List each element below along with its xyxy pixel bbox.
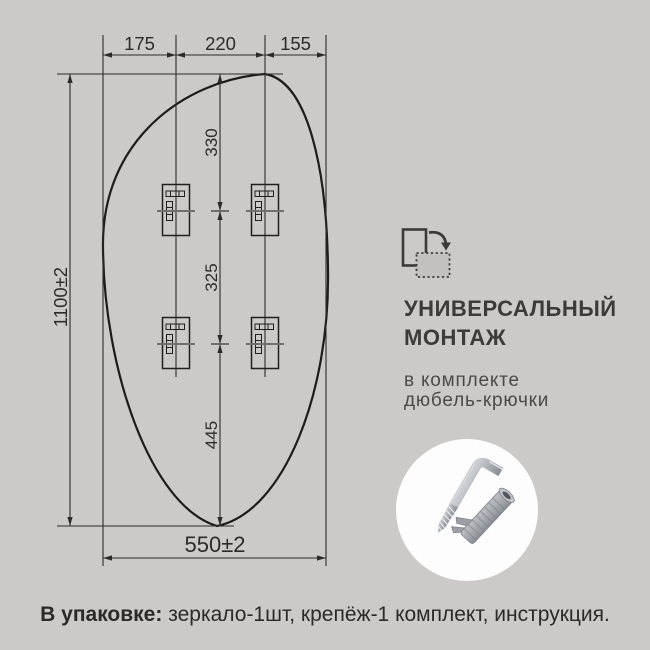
dim-label-top-220: 220 xyxy=(205,33,236,54)
dimension-lines xyxy=(70,55,326,558)
dim-label-top-155: 155 xyxy=(280,33,311,54)
dim-label-325: 325 xyxy=(202,263,221,291)
package-contents-text: зеркало-1шт, крепёж-1 комплект, инструкц… xyxy=(162,603,609,626)
package-contents: В упаковке: зеркало-1шт, крепёж-1 компле… xyxy=(0,603,650,627)
curved-arrow-icon xyxy=(429,232,446,244)
dim-label-330: 330 xyxy=(202,128,221,156)
arrowhead xyxy=(441,243,451,251)
title-line-2: МОНТАЖ xyxy=(404,323,617,352)
dim-label-width: 550±2 xyxy=(184,532,245,557)
hook-and-dowel-photo xyxy=(396,439,538,581)
dim-label-height: 1100±2 xyxy=(50,267,71,327)
included-hardware-subtitle: в комплекте дюбель-крючки xyxy=(404,371,549,411)
product-infographic: 175 220 155 330 325 445 1100±2 550±2 УНИ… xyxy=(0,0,650,650)
extension-lines xyxy=(57,35,326,566)
package-contents-label: В упаковке: xyxy=(40,603,162,626)
rotate-orientation-icon xyxy=(398,225,456,283)
dim-label-445: 445 xyxy=(202,421,221,449)
universal-mount-title: УНИВЕРСАЛЬНЫЙ МОНТАЖ xyxy=(404,294,617,352)
hardware-photo-circle xyxy=(396,439,538,581)
landscape-frame-icon xyxy=(417,253,450,277)
wall-plug-dowel xyxy=(447,477,516,548)
subtitle-line-2: дюбель-крючки xyxy=(404,391,549,411)
title-line-1: УНИВЕРСАЛЬНЫЙ xyxy=(404,294,617,323)
subtitle-line-1: в комплекте xyxy=(404,371,549,391)
dim-label-top-175: 175 xyxy=(124,33,155,54)
